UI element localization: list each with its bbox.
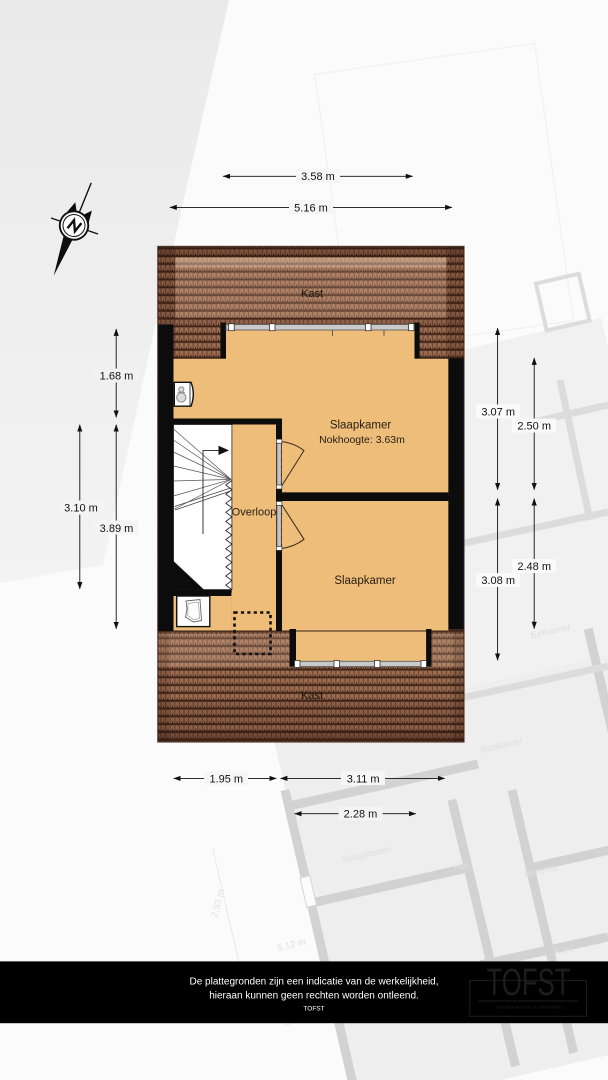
svg-text:3.11 m: 3.11 m	[347, 773, 380, 785]
svg-text:hieraan kunnen geen rechten wo: hieraan kunnen geen rechten worden ontle…	[209, 991, 419, 1002]
svg-text:1.95 m: 1.95 m	[209, 773, 243, 785]
svg-text:tekenbureau voor de makelaardi: tekenbureau voor de makelaardij	[496, 1005, 562, 1010]
svg-text:3.08 m: 3.08 m	[481, 575, 515, 587]
svg-text:1.68 m: 1.68 m	[100, 371, 134, 383]
svg-text:De plattegronden zijn een indi: De plattegronden zijn een indicatie van …	[189, 977, 438, 988]
svg-text:3.58 m: 3.58 m	[301, 171, 335, 183]
svg-text:Nokhoogte: 3.63m: Nokhoogte: 3.63m	[319, 434, 405, 446]
svg-text:2.28 m: 2.28 m	[344, 809, 378, 821]
svg-text:Slaapkamer: Slaapkamer	[330, 420, 392, 432]
svg-text:2.48 m: 2.48 m	[517, 561, 551, 573]
svg-text:3.89 m: 3.89 m	[100, 523, 134, 535]
svg-text:3.07 m: 3.07 m	[481, 407, 515, 419]
svg-text:Overloop: Overloop	[232, 507, 277, 519]
svg-text:Kast: Kast	[301, 288, 323, 300]
svg-text:Kast: Kast	[301, 690, 323, 702]
svg-text:Slaapkamer: Slaapkamer	[334, 575, 396, 587]
svg-text:TOFST: TOFST	[303, 1006, 324, 1013]
svg-text:TOFST: TOFST	[487, 962, 571, 1004]
svg-text:2.50 m: 2.50 m	[517, 421, 551, 433]
svg-text:3.10 m: 3.10 m	[64, 503, 98, 515]
svg-text:5.16 m: 5.16 m	[294, 202, 328, 214]
